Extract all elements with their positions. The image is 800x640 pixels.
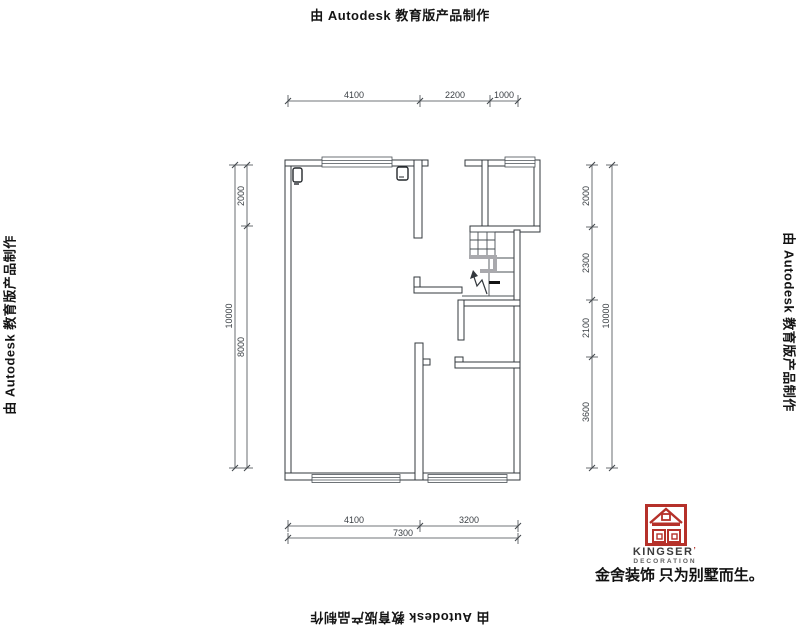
dim-right-total: 10000 (601, 303, 611, 328)
logo-brand-text: KINGSER (633, 546, 694, 558)
logo-brand-name: KINGSER’ (630, 546, 700, 558)
logo-trademark-tick: ’ (693, 546, 697, 555)
floor-plan-svg: 4100 2200 1000 4100 3200 7300 (0, 0, 800, 640)
dim-top-2: 2200 (445, 90, 465, 100)
stair-direction-arrow (470, 270, 500, 294)
dim-right-1: 2000 (581, 186, 591, 206)
dim-right-4: 3600 (581, 402, 591, 422)
dim-bottom-1: 4100 (344, 515, 364, 525)
dim-left-1: 2000 (236, 186, 246, 206)
outer-walls (285, 160, 540, 480)
dimension-top (285, 95, 521, 107)
dim-bottom-total: 7300 (393, 528, 413, 538)
logo-tagline: 金舍装饰 只为别墅而生。 (595, 564, 745, 585)
dim-left-2: 8000 (236, 337, 246, 357)
dim-right-3: 2100 (581, 318, 591, 338)
staircase (462, 232, 514, 296)
stair-railing (469, 257, 497, 271)
interior-walls (414, 160, 520, 480)
dim-bottom-2: 3200 (459, 515, 479, 525)
dim-top-3: 1000 (494, 90, 514, 100)
dim-left-total: 10000 (224, 303, 234, 328)
wall-fixtures (293, 167, 408, 184)
kingser-logo-seal-icon (647, 506, 686, 545)
cad-drawing-canvas: 由 Autodesk 教育版产品制作 由 Autodesk 教育版产品制作 由 … (0, 0, 800, 640)
dim-right-2: 2300 (581, 253, 591, 273)
dim-top-1: 4100 (344, 90, 364, 100)
